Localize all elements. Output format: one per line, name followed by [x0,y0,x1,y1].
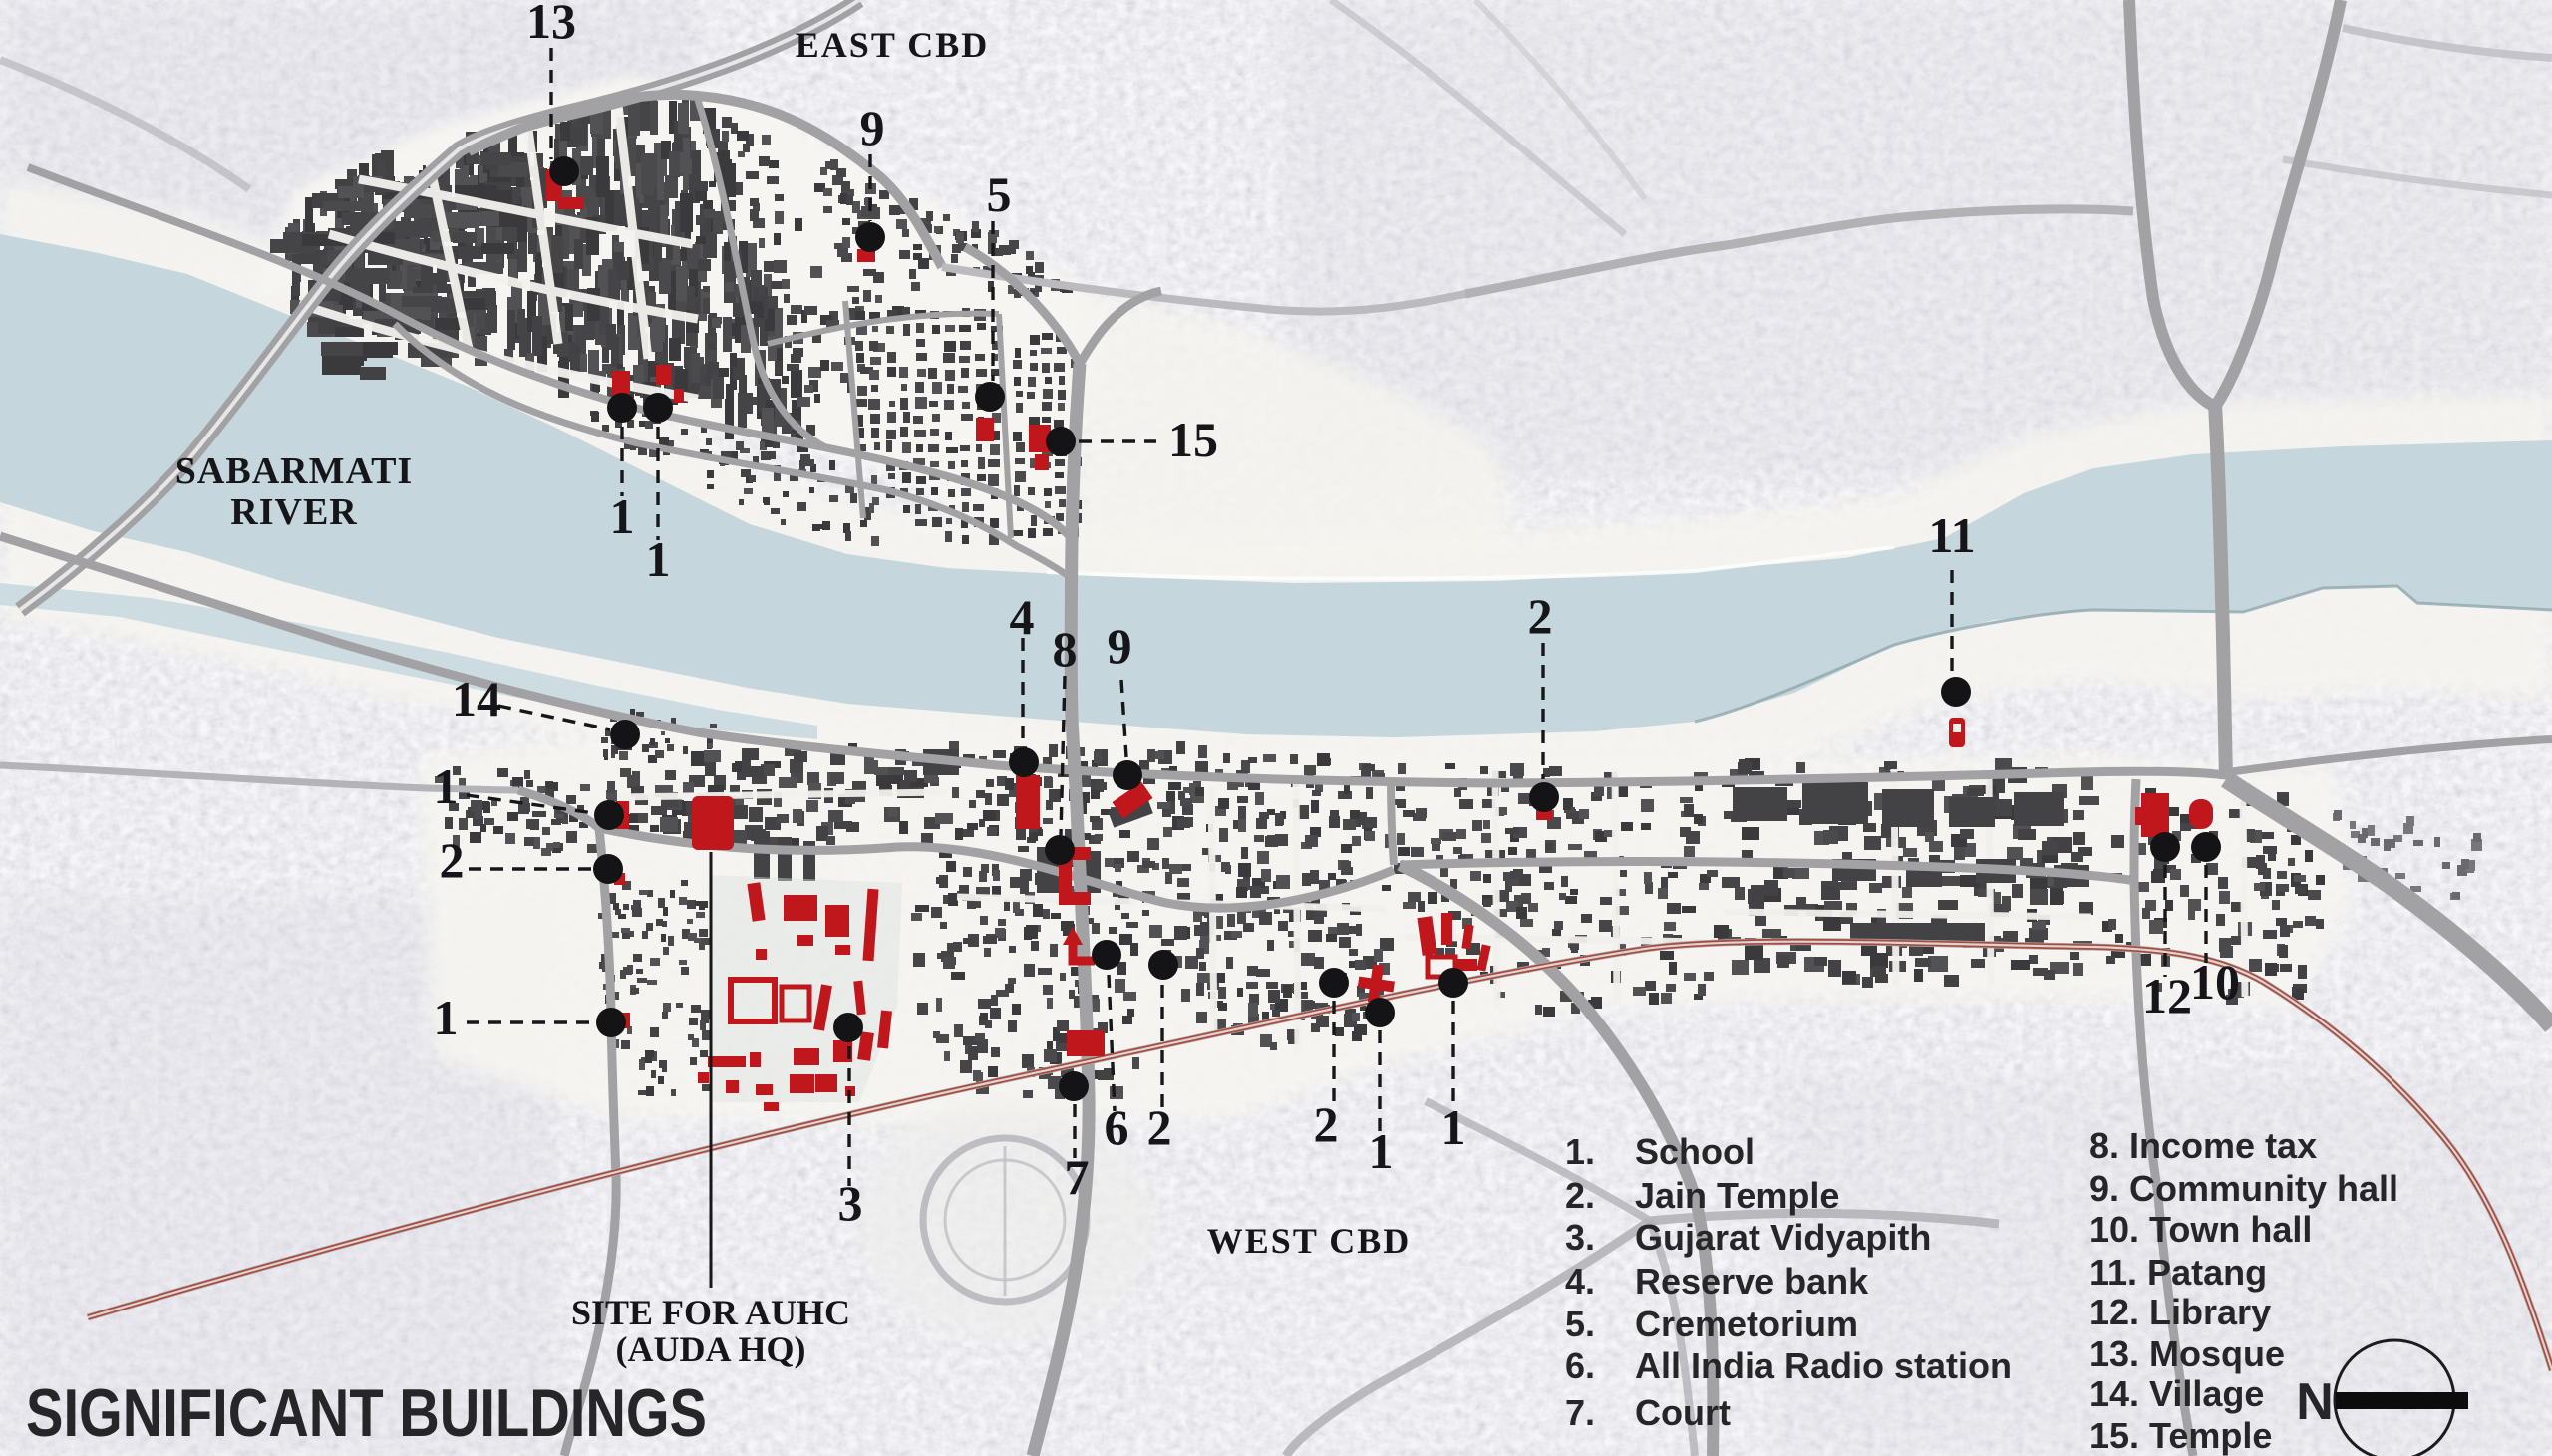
svg-text:9: 9 [1108,618,1132,674]
svg-text:2: 2 [440,832,465,888]
svg-text:1: 1 [646,531,671,587]
svg-text:1.: 1. [1565,1131,1595,1172]
svg-text:1: 1 [434,990,459,1045]
svg-text:RIVER: RIVER [230,491,357,533]
svg-text:SABARMATI: SABARMATI [175,450,413,492]
svg-text:2: 2 [1147,1099,1172,1155]
svg-text:1: 1 [1441,1099,1466,1155]
svg-text:4.: 4. [1565,1261,1595,1302]
svg-text:9: 9 [860,100,885,155]
svg-text:Jain Temple: Jain Temple [1635,1175,1839,1216]
svg-text:5.: 5. [1565,1304,1595,1344]
svg-text:7.: 7. [1565,1392,1595,1433]
svg-text:WEST CBD: WEST CBD [1207,1221,1411,1261]
svg-text:SITE FOR AUHC: SITE FOR AUHC [571,1293,850,1332]
svg-text:Reserve bank: Reserve bank [1635,1261,1869,1302]
svg-text:15. Temple: 15. Temple [2089,1415,2272,1456]
svg-text:11: 11 [1928,507,1975,563]
svg-text:School: School [1635,1131,1754,1172]
svg-text:N: N [2296,1373,2334,1431]
svg-text:4: 4 [1010,589,1035,645]
svg-text:(AUDA HQ): (AUDA HQ) [616,1329,806,1369]
svg-text:11. Patang: 11. Patang [2089,1252,2267,1293]
svg-text:3: 3 [838,1175,863,1231]
svg-text:8: 8 [1053,621,1078,677]
svg-text:2.: 2. [1565,1175,1595,1216]
svg-text:10: 10 [2190,954,2240,1010]
svg-text:14: 14 [452,671,501,727]
svg-text:EAST CBD: EAST CBD [796,25,989,65]
svg-text:2: 2 [1314,1096,1339,1152]
svg-text:Gujarat Vidyapith: Gujarat Vidyapith [1635,1217,1931,1258]
svg-text:12. Library: 12. Library [2089,1292,2271,1332]
svg-text:Court: Court [1635,1392,1731,1433]
svg-text:1: 1 [434,758,459,814]
svg-text:6.: 6. [1565,1345,1595,1386]
svg-text:10. Town hall: 10. Town hall [2089,1209,2312,1250]
svg-text:All India Radio station: All India Radio station [1635,1345,2012,1386]
svg-text:1: 1 [610,488,635,544]
svg-text:9. Community hall: 9. Community hall [2089,1168,2398,1209]
svg-text:7: 7 [1065,1149,1090,1205]
svg-text:12: 12 [2142,968,2192,1023]
svg-text:6: 6 [1105,1099,1129,1155]
svg-text:3.: 3. [1565,1217,1595,1258]
svg-text:1: 1 [1369,1123,1394,1179]
svg-text:14. Village: 14. Village [2089,1373,2264,1414]
svg-text:13. Mosque: 13. Mosque [2089,1333,2285,1374]
svg-text:13: 13 [526,0,576,49]
svg-text:SIGNIFICANT BUILDINGS: SIGNIFICANT BUILDINGS [26,1375,707,1451]
svg-text:Cremetorium: Cremetorium [1635,1304,1858,1344]
svg-text:8. Income tax: 8. Income tax [2089,1125,2317,1166]
svg-text:5: 5 [987,166,1012,222]
svg-text:15: 15 [1168,412,1218,467]
svg-text:2: 2 [1528,588,1553,644]
